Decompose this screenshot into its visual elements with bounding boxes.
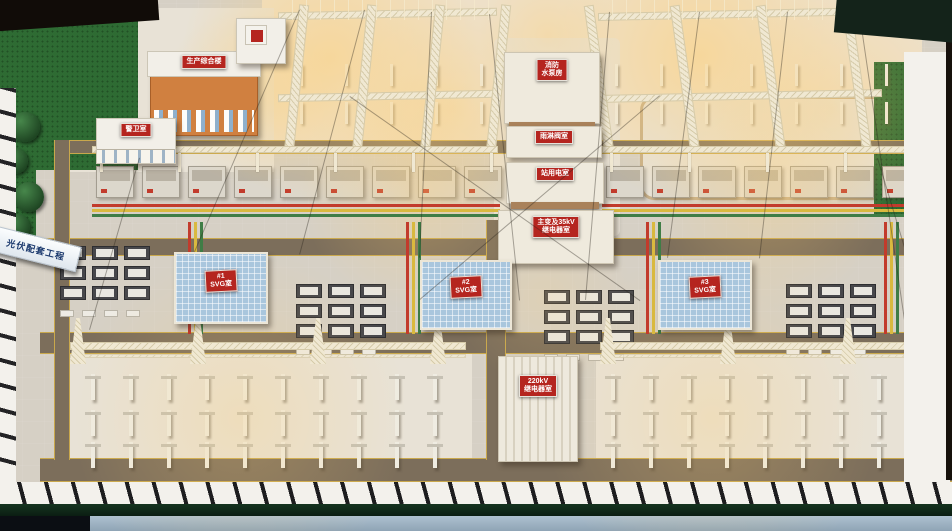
disconnect-switch <box>160 410 178 436</box>
equipment-rack <box>786 324 812 338</box>
yard-post <box>750 102 753 124</box>
protective-net-dropper <box>640 0 641 20</box>
yard-post <box>795 64 798 86</box>
equipment-rack <box>608 310 634 324</box>
disconnect-switch <box>756 374 774 400</box>
equipment-rack <box>328 304 354 318</box>
equipment-rack <box>360 304 386 318</box>
transformer-unit <box>652 166 690 198</box>
disconnect-switch <box>832 410 850 436</box>
disconnect-switch <box>718 374 736 400</box>
svg1-sign-line2: SVG室 <box>210 280 232 289</box>
protective-net-dropper <box>724 0 725 20</box>
yard-gantry-beam <box>600 342 930 350</box>
disconnect-switch <box>718 410 736 436</box>
transformer-unit <box>744 166 782 198</box>
transformer-unit <box>280 166 318 198</box>
road-left-vertical <box>54 140 70 460</box>
yard-post <box>480 102 483 124</box>
protective-net-dropper <box>334 0 335 20</box>
protective-net-dropper <box>710 0 711 20</box>
svg3-sign-line2: SVG室 <box>694 286 716 295</box>
busbar-phase-2 <box>92 214 500 217</box>
protective-net-dropper <box>474 0 475 20</box>
busbar-phase-2 <box>602 214 912 217</box>
tree <box>14 182 44 212</box>
disconnect-switch <box>870 442 888 468</box>
disconnect-switch <box>198 374 216 400</box>
disconnect-switch <box>350 374 368 400</box>
truss-support-post <box>688 152 691 172</box>
disconnect-switch <box>832 374 850 400</box>
protective-net-dropper <box>306 0 307 20</box>
equipment-rack <box>786 284 812 298</box>
equipment-rack <box>818 304 844 318</box>
feeder-bus-phase-1 <box>652 222 655 334</box>
disconnect-switch <box>312 410 330 436</box>
yard-post <box>750 64 753 86</box>
disconnect-switch <box>160 442 178 468</box>
feeder-bus-phase-0 <box>884 222 887 334</box>
transformer-unit <box>790 166 828 198</box>
protective-net-dropper <box>292 0 293 20</box>
table-edge-right <box>904 52 950 482</box>
disconnect-switch <box>274 410 292 436</box>
protective-net-dropper <box>626 0 627 20</box>
relay-room-220kv-sign: 220kV 继电器室 <box>519 375 557 397</box>
guard-room: 警卫室 <box>96 118 176 164</box>
truss-support-post <box>610 152 613 172</box>
equipment-rack <box>818 284 844 298</box>
disconnect-switch <box>122 442 140 468</box>
main-building-sign: 生产综合楼 <box>182 55 227 69</box>
auxiliary-roof-sign <box>245 25 267 45</box>
transformer-unit <box>234 166 272 198</box>
protective-net-dropper <box>460 0 461 20</box>
protective-net-dropper <box>668 0 669 20</box>
protective-net-dropper <box>320 0 321 20</box>
svg-room-1-sign: #1 SVG室 <box>205 269 238 293</box>
equipment-rack <box>60 286 86 300</box>
svg-room-3-sign: #3 SVG室 <box>689 275 722 299</box>
relay220-sign-line2: 继电器室 <box>524 386 552 394</box>
yard-post <box>885 64 888 86</box>
protective-net-dropper <box>794 0 795 20</box>
equipment-bench <box>126 310 140 317</box>
disconnect-switch <box>680 374 698 400</box>
disconnect-switch <box>236 442 254 468</box>
yard-gantry-beam <box>70 342 466 350</box>
svg-room-2-sign: #2 SVG室 <box>450 275 483 299</box>
truss-support-post <box>412 152 415 172</box>
yard-gantry-beam-lower <box>600 354 930 358</box>
disconnect-switch <box>84 442 102 468</box>
yard-post <box>840 64 843 86</box>
protective-net-dropper <box>738 0 739 20</box>
equipment-rack <box>92 246 118 260</box>
fire-pump-house-sign: 消防 水泵房 <box>537 59 568 81</box>
equipment-rack <box>576 330 602 344</box>
protective-net-dropper <box>682 0 683 20</box>
equipment-rack <box>328 284 354 298</box>
disconnect-switch <box>642 374 660 400</box>
truss-support-post <box>490 152 493 172</box>
equipment-rack <box>296 304 322 318</box>
truss-support-post <box>334 152 337 172</box>
mid-truss-bridge <box>602 146 908 153</box>
yard-post <box>795 102 798 124</box>
disconnect-switch <box>122 374 140 400</box>
disconnect-switch <box>794 442 812 468</box>
equipment-rack <box>92 286 118 300</box>
protective-net-dropper <box>752 0 753 20</box>
protective-net-dropper <box>348 0 349 20</box>
yard-post <box>300 102 303 124</box>
equipment-rack <box>544 290 570 304</box>
equipment-rack <box>360 324 386 338</box>
yard-post <box>660 64 663 86</box>
disconnect-switch <box>160 374 178 400</box>
truss-support-post <box>178 152 181 172</box>
disconnect-switch <box>680 442 698 468</box>
disconnect-switch <box>274 442 292 468</box>
protective-net-dropper <box>822 0 823 20</box>
disconnect-switch <box>604 374 622 400</box>
busbar-phase-1 <box>602 209 912 212</box>
yard-post <box>705 102 708 124</box>
protective-net-dropper <box>390 0 391 20</box>
equipment-rack <box>360 284 386 298</box>
equipment-rack <box>786 304 812 318</box>
disconnect-switch <box>604 442 622 468</box>
yard-post <box>345 102 348 124</box>
yard-post <box>480 64 483 86</box>
disconnect-switch <box>642 442 660 468</box>
disconnect-switch <box>350 442 368 468</box>
equipment-rack <box>850 284 876 298</box>
equipment-rack <box>124 286 150 300</box>
guard-room-sign: 警卫室 <box>121 123 152 137</box>
relay-room-220kv: 220kV 继电器室 <box>498 356 578 462</box>
perimeter-fence-bottom <box>0 482 952 504</box>
equipment-rack <box>576 290 602 304</box>
yard-gantry-beam-lower <box>70 354 466 358</box>
deluge-valve-room-sign: 雨淋阀室 <box>535 130 573 144</box>
busbar-phase-1 <box>92 209 500 212</box>
feeder-bus-phase-0 <box>406 222 409 334</box>
disconnect-switch <box>680 410 698 436</box>
disconnect-switch <box>426 410 444 436</box>
busbar-phase-0 <box>602 204 912 207</box>
yard-post <box>615 64 618 86</box>
transformer-unit <box>698 166 736 198</box>
feeder-bus-phase-0 <box>646 222 649 334</box>
disconnect-switch <box>388 442 406 468</box>
disconnect-switch <box>84 410 102 436</box>
transformer-relay-sign-line1: 主变及35kV <box>537 219 574 227</box>
equipment-rack <box>850 324 876 338</box>
protective-net-dropper <box>766 0 767 20</box>
yard-post <box>615 102 618 124</box>
disconnect-switch <box>84 374 102 400</box>
disconnect-switch <box>198 442 216 468</box>
disconnect-switch <box>122 410 140 436</box>
table-edge-right-sliver <box>946 0 952 480</box>
equipment-rack <box>124 246 150 260</box>
substation-model-photo: 生产综合楼 警卫室 消防 水泵房 雨淋阀室 站用电室 主变及35kV 继电器室 <box>0 0 952 531</box>
yard-post <box>705 64 708 86</box>
disconnect-switch <box>794 410 812 436</box>
transformer-unit <box>326 166 364 198</box>
svg2-sign-line2: SVG室 <box>455 286 477 295</box>
equipment-rack <box>124 266 150 280</box>
station-power-room-awning <box>511 202 599 209</box>
transformer-unit <box>142 166 180 198</box>
protective-net-dropper <box>432 0 433 20</box>
disconnect-switch <box>426 442 444 468</box>
protective-net-dropper <box>446 0 447 20</box>
disconnect-switch <box>794 374 812 400</box>
equipment-rack <box>328 324 354 338</box>
equipment-rack <box>296 284 322 298</box>
equipment-rack <box>544 330 570 344</box>
yard-post <box>390 64 393 86</box>
yard-post <box>660 102 663 124</box>
disconnect-switch <box>832 442 850 468</box>
fire-pump-house: 消防 水泵房 <box>504 52 600 124</box>
protective-net-dropper <box>654 0 655 20</box>
disconnect-switch <box>198 410 216 436</box>
protective-net-dropper <box>404 0 405 20</box>
disconnect-switch <box>236 410 254 436</box>
disconnect-switch <box>604 410 622 436</box>
equipment-rack <box>544 310 570 324</box>
hedge-strip-bottom <box>0 504 952 516</box>
equipment-bench <box>60 310 74 317</box>
fire-pump-house-sign-line1: 消防 <box>542 62 563 70</box>
disconnect-switch <box>388 410 406 436</box>
disconnect-switch <box>388 374 406 400</box>
yard-post <box>390 102 393 124</box>
protective-net-dropper <box>808 0 809 20</box>
yard-post <box>885 102 888 124</box>
transformer-35kv-relay-room-sign: 主变及35kV 继电器室 <box>532 216 579 238</box>
feeder-bus-phase-1 <box>412 222 415 334</box>
truss-support-post <box>256 152 259 172</box>
protective-net-dropper <box>376 0 377 20</box>
disconnect-switch <box>756 442 774 468</box>
equipment-rack <box>576 310 602 324</box>
protective-net-dropper <box>418 0 419 20</box>
disconnect-switch <box>236 374 254 400</box>
transformer-unit <box>836 166 874 198</box>
transformer-unit <box>372 166 410 198</box>
disconnect-switch <box>642 410 660 436</box>
disconnect-switch <box>870 410 888 436</box>
disconnect-switch <box>426 374 444 400</box>
fire-pump-house-sign-line2: 水泵房 <box>542 70 563 78</box>
disconnect-switch <box>312 374 330 400</box>
protective-net-dropper <box>696 0 697 20</box>
yard-post <box>435 102 438 124</box>
disconnect-switch <box>312 442 330 468</box>
yard-post <box>840 102 843 124</box>
disconnect-switch <box>350 410 368 436</box>
disconnect-switch <box>718 442 736 468</box>
relay220-sign-line1: 220kV <box>524 378 552 386</box>
truss-support-post <box>844 152 847 172</box>
station-power-room-sign: 站用电室 <box>536 167 574 181</box>
disconnect-switch <box>870 374 888 400</box>
disconnect-switch <box>756 410 774 436</box>
equipment-rack <box>818 324 844 338</box>
table-edge-left <box>0 88 16 482</box>
busbar-phase-0 <box>92 204 500 207</box>
protective-net-dropper <box>612 0 613 20</box>
deluge-valve-room: 雨淋阀室 <box>506 126 602 158</box>
equipment-bench <box>104 310 118 317</box>
disconnect-switch <box>274 374 292 400</box>
model-table: 生产综合楼 警卫室 消防 水泵房 雨淋阀室 站用电室 主变及35kV 继电器室 <box>0 0 952 512</box>
guard-room-windows <box>97 149 175 163</box>
equipment-rack <box>850 304 876 318</box>
protective-net-dropper <box>780 0 781 20</box>
